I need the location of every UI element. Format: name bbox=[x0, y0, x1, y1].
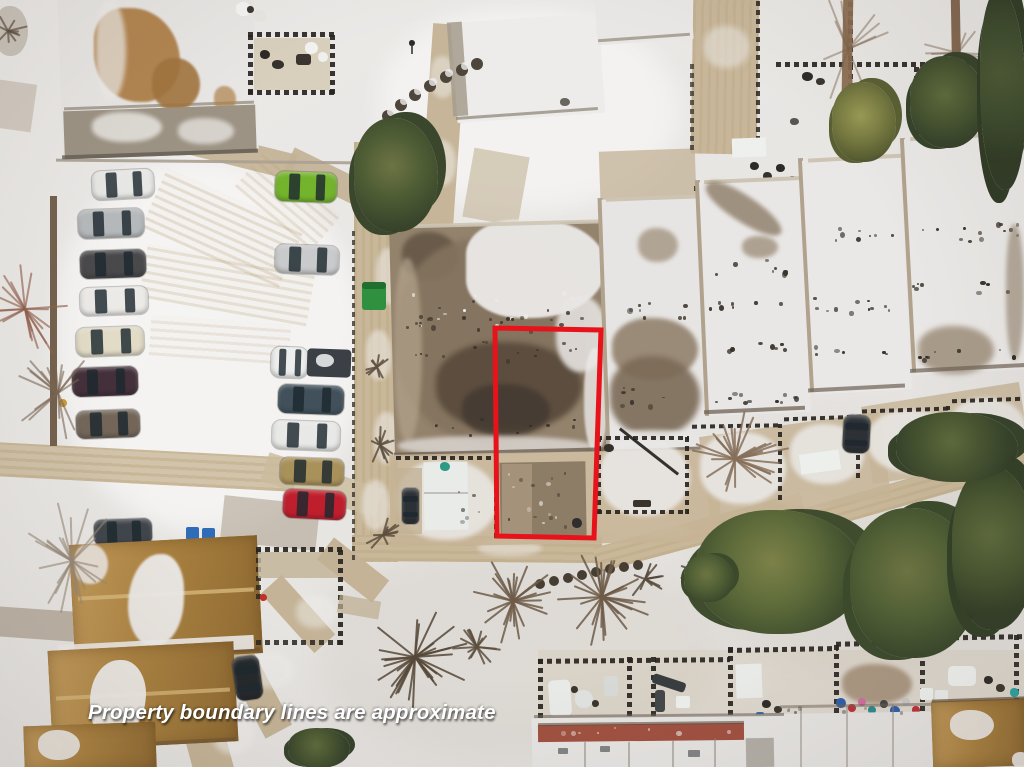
patio-item bbox=[272, 60, 284, 69]
walkway-tracks bbox=[691, 0, 760, 155]
parked-car bbox=[91, 168, 154, 200]
parked-car bbox=[272, 420, 341, 451]
hedge-snow bbox=[445, 69, 453, 77]
yard-mud bbox=[842, 664, 912, 704]
shrub bbox=[360, 424, 400, 464]
parked-car bbox=[842, 414, 871, 453]
yard-fence bbox=[597, 510, 689, 514]
snow-patch bbox=[38, 730, 80, 760]
roof-debris bbox=[914, 220, 1022, 246]
aerial-photo: Property boundary lines are approximate bbox=[0, 0, 1024, 767]
patio-lounge bbox=[548, 679, 572, 716]
shrub bbox=[361, 350, 393, 382]
walkway bbox=[0, 80, 37, 133]
bbq-grill bbox=[802, 72, 813, 81]
yard-fence bbox=[597, 436, 689, 440]
snow-patch bbox=[950, 710, 994, 740]
evergreen-tree bbox=[910, 56, 986, 148]
dumpster-lid bbox=[362, 282, 386, 289]
deck-floor bbox=[254, 38, 330, 90]
lamp-post bbox=[411, 45, 413, 54]
patio-item bbox=[592, 700, 599, 707]
patio-item bbox=[604, 676, 618, 696]
spruce-tree bbox=[952, 466, 1024, 630]
yard-fence bbox=[756, 0, 760, 150]
pickup-bed-snow bbox=[316, 354, 334, 367]
roof-debris bbox=[404, 298, 600, 334]
deck-fence bbox=[330, 32, 335, 94]
brick-band-snow bbox=[540, 726, 740, 739]
patio-item bbox=[296, 54, 311, 65]
patio-table bbox=[732, 137, 767, 157]
deck-fence bbox=[248, 32, 253, 94]
snow-patch bbox=[296, 596, 338, 628]
roof-debris bbox=[810, 296, 902, 318]
caption-text: Property boundary lines are approximate bbox=[88, 701, 496, 725]
parked-car bbox=[280, 457, 345, 486]
patio-item bbox=[816, 78, 825, 85]
hot-tub bbox=[948, 666, 976, 686]
yard-fence bbox=[396, 456, 494, 460]
patio-item bbox=[984, 676, 993, 684]
roof-debris bbox=[762, 706, 932, 716]
hedge-snow bbox=[414, 87, 422, 95]
bench bbox=[633, 500, 651, 507]
roof-seam bbox=[714, 738, 716, 767]
yard-fence bbox=[256, 640, 344, 645]
roof-debris bbox=[910, 348, 1022, 362]
bare-tree bbox=[451, 620, 503, 672]
yard-fence bbox=[538, 658, 543, 718]
roof-debris bbox=[708, 298, 802, 318]
chimney-vent bbox=[254, 10, 266, 22]
hedge-snow bbox=[400, 97, 408, 105]
photo-scene bbox=[0, 0, 1024, 767]
evergreen-bush bbox=[832, 82, 896, 162]
parked-car bbox=[282, 488, 346, 520]
yard-debris bbox=[428, 468, 484, 526]
parked-car bbox=[275, 244, 340, 275]
spruce-tree bbox=[684, 554, 734, 602]
hedge-snow bbox=[429, 78, 437, 86]
deck-fence bbox=[248, 32, 334, 37]
bare-tree bbox=[550, 544, 654, 648]
hydrant-red bbox=[260, 594, 267, 601]
chimney-vent bbox=[247, 6, 254, 13]
patio-table bbox=[575, 690, 593, 708]
bare-tree bbox=[12, 500, 132, 620]
patio-item bbox=[776, 164, 785, 172]
hot-tub bbox=[305, 42, 318, 54]
roof-seam bbox=[800, 708, 802, 767]
parked-car bbox=[80, 249, 147, 279]
hot-tub bbox=[318, 52, 328, 62]
yard-fence bbox=[597, 436, 601, 514]
roof-seam bbox=[672, 740, 674, 767]
patio-item bbox=[571, 686, 578, 693]
bare-tree bbox=[680, 403, 790, 513]
hedge-row bbox=[471, 58, 483, 70]
road-fence bbox=[352, 230, 355, 560]
roof-debris bbox=[610, 296, 698, 322]
yard-fence bbox=[690, 60, 694, 150]
roof-seam bbox=[628, 742, 630, 767]
roof-debris bbox=[420, 416, 590, 446]
patio-item bbox=[572, 518, 582, 528]
snow-patch bbox=[92, 112, 162, 142]
yard-fence bbox=[728, 647, 733, 715]
parked-car bbox=[80, 286, 149, 316]
roof-debris bbox=[412, 340, 592, 368]
roof-stain bbox=[1006, 224, 1024, 360]
parked-car bbox=[274, 171, 337, 203]
shrub bbox=[363, 514, 403, 554]
hedge-snow bbox=[461, 62, 469, 70]
roof-seam bbox=[584, 742, 586, 767]
patio-item bbox=[676, 696, 690, 708]
snow-patch bbox=[1012, 752, 1024, 767]
bare-tree bbox=[10, 344, 106, 440]
snow-patch bbox=[178, 118, 234, 144]
townhouse-roof bbox=[802, 156, 912, 395]
patio-sofa bbox=[655, 690, 665, 712]
skylight bbox=[688, 750, 700, 757]
skylight bbox=[558, 748, 568, 754]
roof-shingle-patch bbox=[152, 58, 200, 110]
patio-item bbox=[260, 50, 270, 59]
roof-debris bbox=[912, 278, 1020, 298]
shed-roof bbox=[735, 664, 762, 699]
spruce-tree bbox=[896, 412, 1018, 482]
roof-vent bbox=[560, 98, 570, 106]
yard-deck bbox=[258, 552, 338, 578]
roof-debris bbox=[812, 226, 902, 248]
snow-patch bbox=[704, 26, 750, 68]
skylight bbox=[600, 746, 610, 752]
patio-item bbox=[996, 684, 1005, 692]
patio-item bbox=[604, 444, 614, 452]
shrub bbox=[0, 8, 30, 52]
parked-car bbox=[402, 488, 419, 524]
patio-item bbox=[920, 688, 933, 700]
roof-debris bbox=[810, 344, 902, 358]
deck-fence bbox=[248, 90, 334, 95]
roof-stain bbox=[742, 236, 778, 258]
spruce-tree bbox=[288, 728, 350, 767]
hedge-snow bbox=[387, 108, 395, 116]
parked-car bbox=[78, 208, 145, 239]
patio-item bbox=[750, 162, 759, 170]
parked-car bbox=[278, 384, 345, 415]
walkway bbox=[462, 148, 529, 227]
pickup-cab bbox=[270, 346, 308, 378]
evergreen-tree bbox=[354, 118, 438, 232]
snow-patch bbox=[96, 0, 126, 100]
yard-fence bbox=[627, 656, 632, 716]
snow-flecks bbox=[506, 470, 582, 530]
roof-debris bbox=[708, 258, 802, 278]
evergreen-tree bbox=[980, 0, 1024, 190]
patio-item bbox=[790, 118, 799, 125]
yard-fence bbox=[494, 458, 498, 538]
roof-stain bbox=[638, 228, 678, 262]
roof-panel bbox=[746, 738, 775, 767]
roof-debris bbox=[706, 340, 802, 356]
